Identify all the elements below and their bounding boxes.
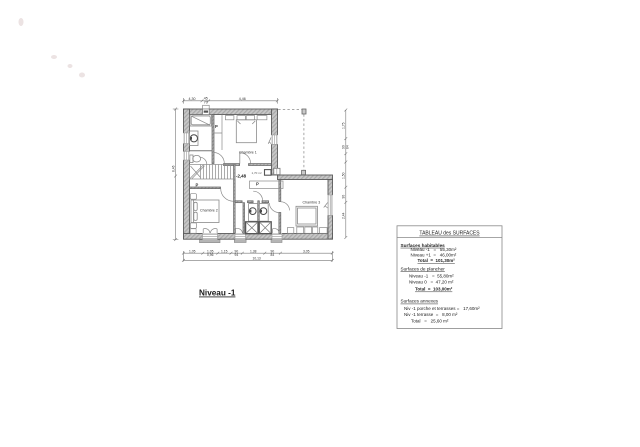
svg-text:Total = 25,60 m²: Total = 25,60 m²	[411, 318, 449, 323]
svg-text:0,96: 0,96	[207, 253, 214, 257]
svg-text:90: 90	[342, 195, 346, 199]
svg-text:P: P	[196, 183, 199, 188]
svg-text:94: 94	[235, 253, 239, 257]
svg-text:1,50: 1,50	[342, 172, 346, 179]
svg-text:10,13: 10,13	[253, 257, 261, 261]
svg-text:-2,48: -2,48	[236, 174, 247, 179]
svg-text:Chambre 3: Chambre 3	[303, 200, 321, 204]
svg-text:P: P	[256, 181, 259, 186]
svg-text:Chambre 2: Chambre 2	[200, 209, 218, 213]
svg-text:1,15: 1,15	[221, 249, 228, 253]
svg-text:4,46: 4,46	[239, 97, 246, 101]
svg-text:3,05: 3,05	[303, 249, 310, 253]
svg-text:Surfaces annexes: Surfaces annexes	[401, 299, 439, 304]
svg-text:Niveau -1 = 55,30m²: Niveau -1 = 55,30m²	[411, 247, 457, 252]
svg-text:70: 70	[204, 100, 208, 104]
svg-text:Total = 103,00m²: Total = 103,00m²	[415, 287, 453, 292]
svg-text:1,75: 1,75	[342, 122, 346, 129]
svg-text:8,46: 8,46	[172, 165, 176, 172]
svg-text:P: P	[215, 124, 218, 129]
svg-text:Niveau -1 = 55,80m²: Niveau -1 = 55,80m²	[409, 274, 454, 279]
svg-text:84: 84	[345, 145, 349, 149]
svg-text:Chambre 1: Chambre 1	[239, 151, 257, 155]
svg-text:1,05: 1,05	[189, 249, 196, 253]
svg-text:2,44: 2,44	[342, 212, 346, 219]
svg-text:Niv -1 porche et terrasses =: Niv -1 porche et terrasses = 17,60m²	[404, 306, 480, 311]
svg-text:Niveau -1: Niveau -1	[199, 289, 236, 298]
svg-text:1,70 m²: 1,70 m²	[252, 171, 262, 175]
svg-text:Niv -1 terrasse = 8,00 m²: Niv -1 terrasse = 8,00 m²	[404, 312, 458, 317]
svg-text:Total = 101,30m²: Total = 101,30m²	[418, 258, 456, 263]
svg-text:4,30: 4,30	[189, 97, 196, 101]
svg-text:Niveau +1 = 46,00m²: Niveau +1 = 46,00m²	[411, 252, 457, 257]
svg-text:Surfaces de plancher: Surfaces de plancher	[401, 266, 446, 271]
svg-text:Niveau 0 = 47,20 m²: Niveau 0 = 47,20 m²	[409, 280, 454, 285]
svg-text:TABLEAU des SURFACES: TABLEAU des SURFACES	[419, 231, 480, 237]
svg-text:84: 84	[271, 253, 275, 257]
svg-text:1,38: 1,38	[250, 249, 257, 253]
